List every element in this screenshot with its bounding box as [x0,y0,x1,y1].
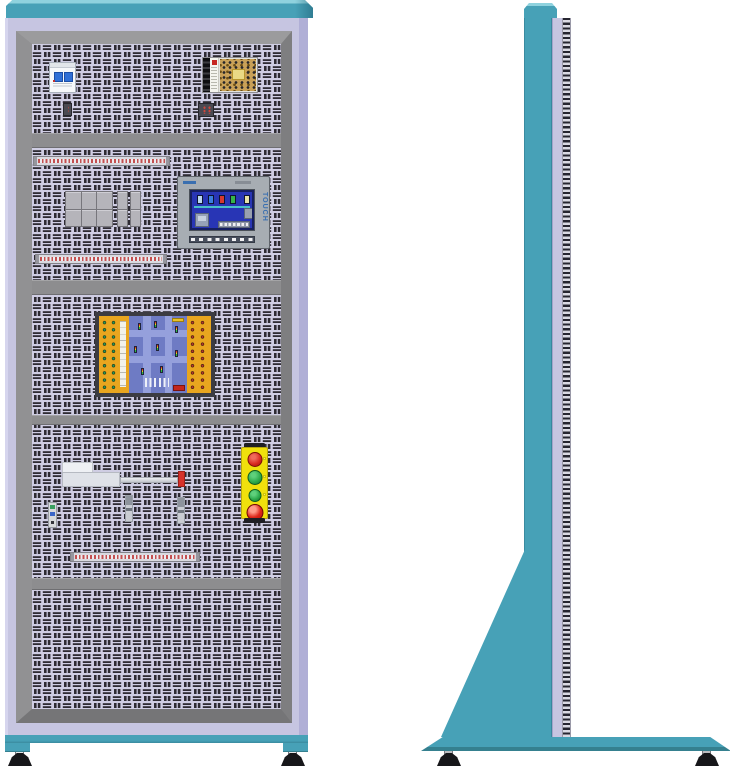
traffic-light-graphic [175,350,178,357]
connector-terminals [66,106,69,113]
station-bottom-cap [244,518,265,523]
relay-module-single [130,191,141,227]
relay-module [66,192,81,209]
road-graphic [129,330,187,337]
leveling-foot [437,753,461,766]
strip-end-bracket [36,255,39,263]
traffic-trainer-board [95,312,215,397]
front-base-plinth [5,735,308,743]
psu-terminal-blocks [203,58,210,92]
board-label-strip [120,321,126,387]
hmi-machine-graphic [195,213,209,227]
button-label-holder [263,493,266,496]
psu-transformer [232,69,245,80]
breaker-toggle-right[interactable] [64,72,73,82]
connector-terminals [201,106,211,114]
relay-module-single [117,191,128,227]
hmi-machine-window [198,216,206,221]
breaker-markings [53,83,72,88]
station-yellow-body [241,447,268,519]
terminal-strip-row-1 [33,156,170,166]
board-socket-column [189,319,196,389]
leveling-foot [695,753,719,766]
switching-power-supply [202,57,258,93]
traffic-light-graphic [175,326,178,333]
side-triangular-gusset [441,545,527,737]
hmi-function-key-caps [191,238,253,241]
strip-end-bracket [71,553,74,561]
green-push-button-small[interactable] [248,489,261,502]
terminal-strip-row-3 [70,552,200,562]
side-floor-base-plate [421,737,730,751]
relay-module [97,192,112,209]
traffic-light-graphic [138,323,141,330]
board-name-plate [173,385,185,391]
front-body-shade [299,18,308,740]
inductive-sensor-1 [125,495,133,522]
relay-module [118,192,127,209]
hmi-touch-label: TOUCH [261,192,268,222]
sensor-head [178,498,184,507]
relay-module [131,192,140,209]
strip-end-bracket [34,157,37,165]
hmi-tank-graphic [208,195,214,204]
hmi-brand-logo [183,181,196,184]
hmi-model-text [235,181,251,184]
traffic-light-graphic [160,366,163,373]
terminal-connector-small-left [63,103,72,116]
push-button-station [241,443,268,523]
terminal-strip-row-2 [35,254,167,264]
button-label-holder [263,457,266,460]
board-socket-column [110,319,117,389]
panel-divider-2 [32,280,281,295]
crosswalk-graphic [145,378,169,387]
strip-end-bracket [166,157,169,165]
button-label-holder [263,475,266,478]
hmi-indicators [220,223,248,226]
hmi-touch-panel: TOUCH [177,176,270,249]
board-socket-column [199,319,206,389]
inductive-sensor-2 [177,497,185,524]
traffic-light-graphic [134,346,137,353]
hmi-tank-graphic [244,195,250,204]
front-top-cap [6,0,313,18]
relay-module [97,210,112,227]
relay-module [82,192,97,209]
board-intersection-field [129,316,187,393]
linear-actuator-body [62,472,120,487]
board-socket-column [101,319,108,389]
sensor-board [48,502,57,528]
hmi-tank-graphic [197,195,203,204]
side-panel-strip [552,18,562,737]
relay-module [82,210,97,227]
strip-terminals [38,159,165,163]
psu-label-strip [210,58,219,92]
traffic-light-graphic [154,321,157,328]
hmi-tank-graphic [230,195,236,204]
psu-brand-logo [212,60,217,65]
side-top-cap [524,3,557,18]
leveling-foot [8,753,32,766]
panel-divider-1 [32,133,281,148]
leveling-foot [281,753,305,766]
hmi-tank-graphic [219,195,225,204]
relay-module [118,210,127,227]
pcb-chip-green [50,505,55,509]
breaker-top-band [50,63,75,68]
psu-circuit-board [220,59,256,91]
traffic-light-graphic [156,344,159,351]
relay-module [66,210,81,227]
hmi-pipe-graphic [194,206,250,208]
hmi-function-keys[interactable] [189,236,255,243]
road-graphic [129,356,187,363]
strip-terminals [75,555,195,559]
board-right-terminal-column [187,316,211,393]
traffic-light-graphic [141,368,144,375]
cap-side-facet [295,0,313,18]
strip-end-bracket [196,553,199,561]
plinth-corner-block [283,743,308,752]
front-body-highlight [5,18,8,740]
sensor-head [126,496,132,505]
plinth-corner-block [5,743,30,752]
panel-divider-3 [32,415,281,425]
sensor-band [178,510,184,513]
actuator-rod [120,477,178,483]
relay-module [131,210,140,227]
side-perforated-edge [562,18,571,737]
hmi-screen[interactable] [192,192,252,228]
sensor-band [126,508,132,511]
breaker-indicator [53,80,55,82]
relay-module-block [65,191,113,227]
terminal-connector-small-right [198,103,214,117]
panel-divider-4 [32,578,281,590]
green-push-button[interactable] [247,470,262,485]
board-left-terminal-column [99,316,129,393]
actuator-rod-tip [178,471,185,487]
psu-label-text-lines [211,67,217,90]
board-yellow-marker [172,318,184,322]
hmi-unit-graphic [244,208,252,219]
hmi-indicator-row [218,221,250,228]
training-cabinet-illustration: TOUCH [0,0,730,766]
circuit-breaker [49,62,76,93]
hmi-screen-frame [189,189,255,231]
red-push-button[interactable] [247,452,262,467]
pcb-component [51,521,54,524]
side-upright-column [524,18,552,737]
pcb-chip-blue [50,512,55,516]
front-door-frame: TOUCH [16,31,292,723]
strip-end-bracket [163,255,166,263]
strip-terminals [40,257,162,261]
